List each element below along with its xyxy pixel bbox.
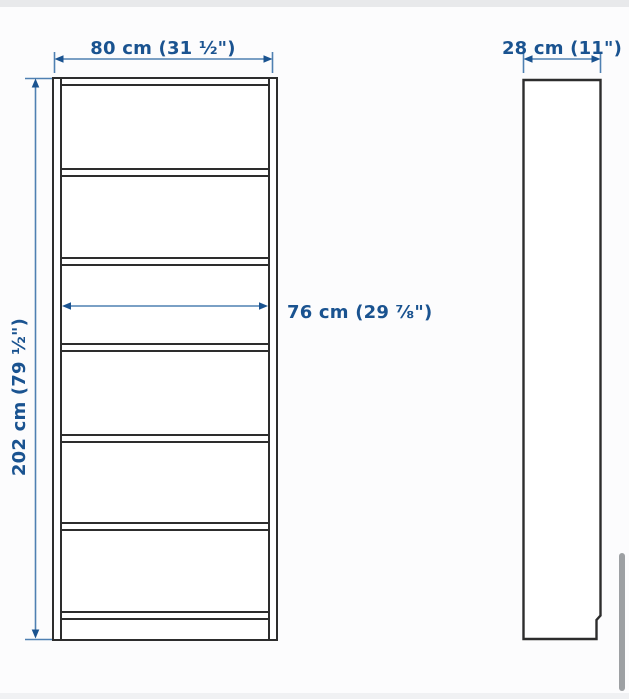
height-arrowhead-down-icon [32, 630, 40, 639]
front-view [53, 78, 277, 640]
top-strip [0, 0, 629, 7]
inner-width-dimension-label: 76 cm (29 ⅞") [287, 302, 432, 324]
product-dimension-diagram: 80 cm (31 ½") 28 cm (11") 76 cm (29 ⅞") … [0, 7, 629, 693]
scrollbar-thumb[interactable] [619, 553, 625, 691]
dimension-diagram-svg [0, 7, 629, 693]
bottom-strip [0, 693, 629, 699]
front-width-dimension-label: 80 cm (31 ½") [90, 38, 235, 60]
height-dimension-label: 202 cm (79 ½") [9, 318, 31, 476]
front-view-outline [53, 78, 277, 640]
side-depth-dimension-label: 28 cm (11") [502, 38, 622, 60]
height-arrowhead-up-icon [32, 79, 40, 88]
side-view-outline [524, 80, 601, 639]
side-view [524, 80, 601, 639]
width-arrowhead-left-icon [55, 55, 64, 63]
width-arrowhead-right-icon [264, 55, 273, 63]
page: 80 cm (31 ½") 28 cm (11") 76 cm (29 ⅞") … [0, 0, 629, 699]
